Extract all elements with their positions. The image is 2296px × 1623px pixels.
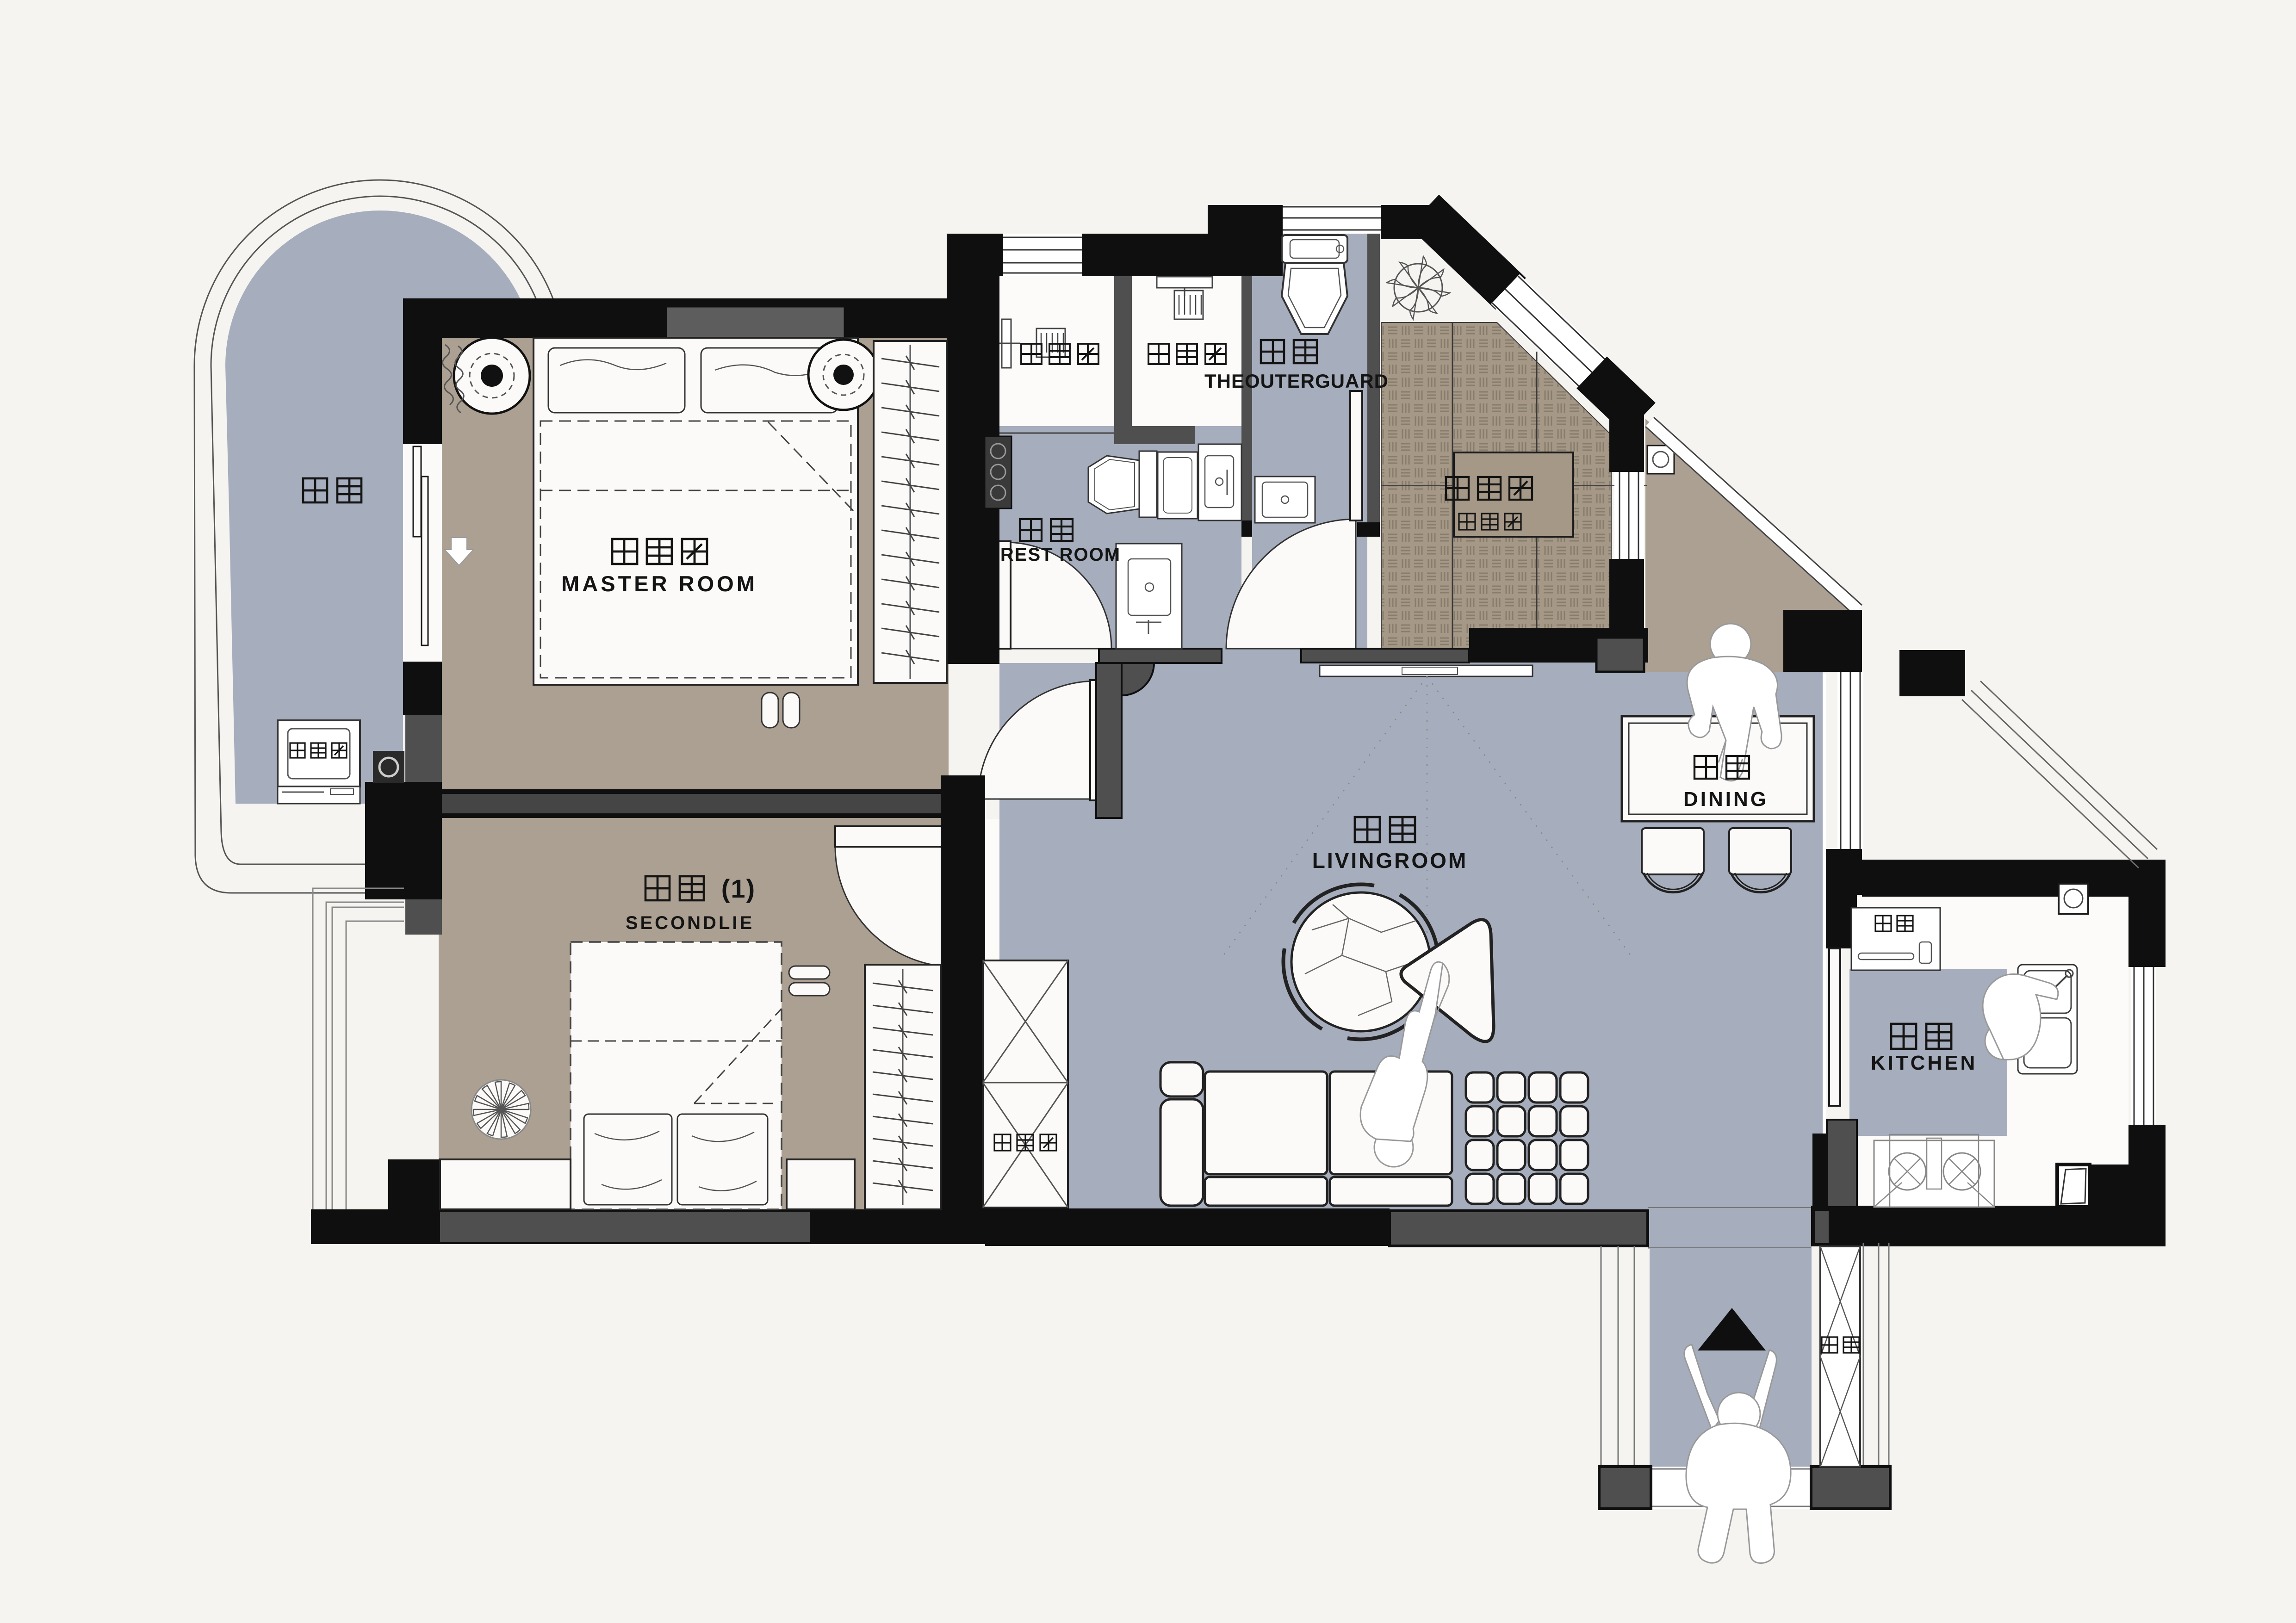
svg-text:LIVINGROOM: LIVINGROOM xyxy=(1312,849,1468,873)
svg-text:REST ROOM: REST ROOM xyxy=(1000,545,1121,565)
svg-text:(1): (1) xyxy=(721,874,756,903)
svg-text:KITCHEN: KITCHEN xyxy=(1871,1052,1978,1074)
svg-text:THEOUTERGUARD: THEOUTERGUARD xyxy=(1204,370,1389,392)
svg-text:DINING: DINING xyxy=(1683,788,1769,811)
svg-text:SECONDLIE: SECONDLIE xyxy=(626,913,754,933)
svg-text:MASTER ROOM: MASTER ROOM xyxy=(561,571,757,596)
